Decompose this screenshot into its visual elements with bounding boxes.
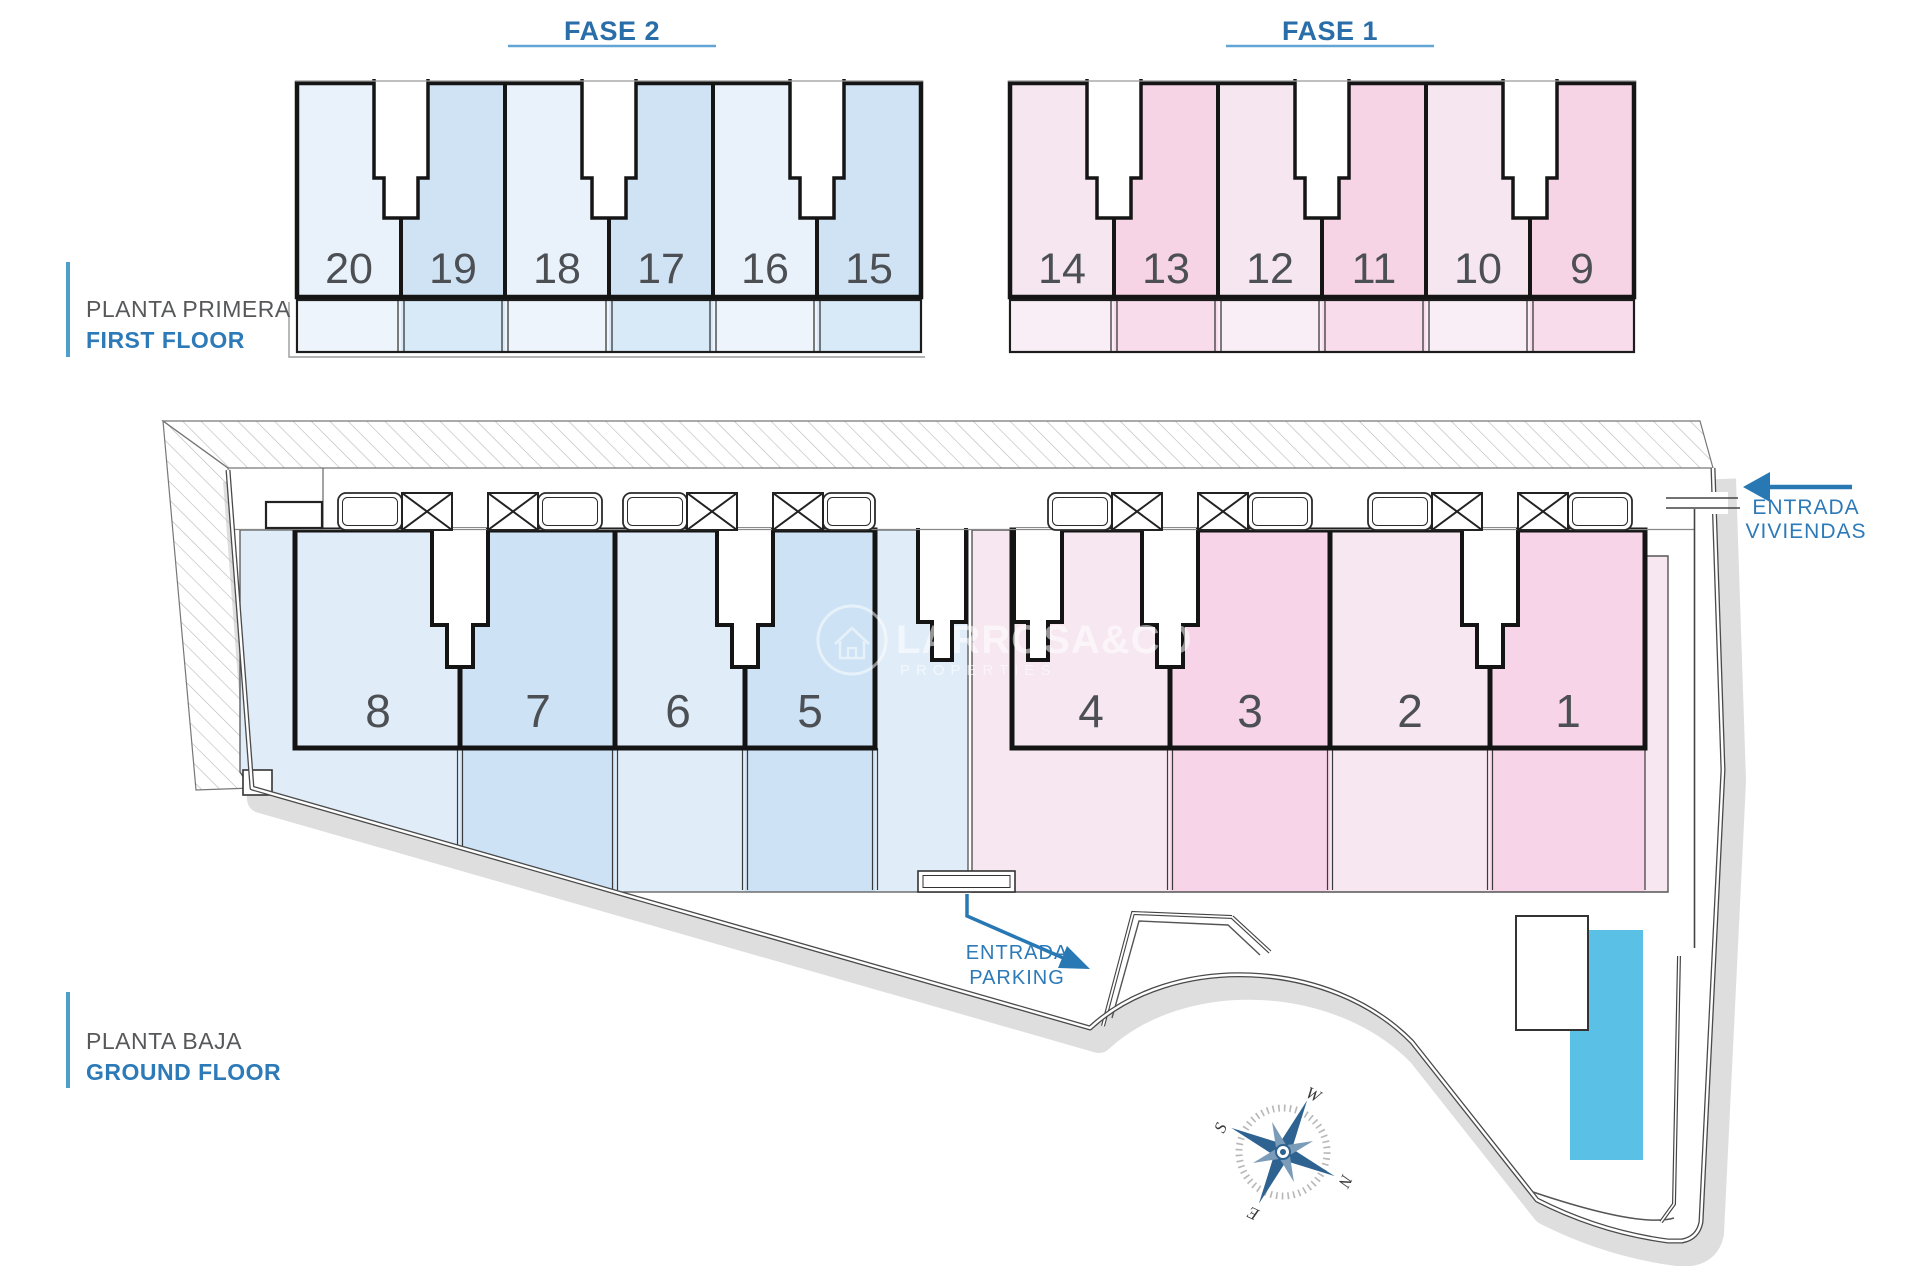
pool-house	[1516, 916, 1588, 1030]
unit-15-number: 15	[845, 245, 893, 294]
unit-4-number: 4	[1078, 684, 1104, 738]
hatch-band-top	[163, 421, 1713, 468]
unit-14-number: 14	[1038, 245, 1086, 294]
first-floor-fase2-block	[289, 79, 925, 357]
first-floor-rule	[66, 262, 70, 357]
unit-2-number: 2	[1397, 684, 1423, 738]
unit-18-number: 18	[533, 245, 581, 294]
site-plan: N E S W FASE 2 FASE 1 PLANTA PRIMERA FIR…	[0, 0, 1920, 1280]
unit-19-number: 19	[429, 245, 477, 294]
unit-10-number: 10	[1454, 245, 1502, 294]
homes-entrance-label-1: ENTRADA	[1752, 496, 1859, 520]
homes-entrance-label-2: VIVIENDAS	[1745, 520, 1866, 544]
balcony-strip-fase2	[289, 300, 925, 357]
unit-7-number: 7	[525, 684, 551, 738]
compass-s-label: S	[1210, 1119, 1231, 1135]
watermark-name: LARROSA&CO	[896, 618, 1193, 663]
compass-e-label: E	[1244, 1202, 1263, 1224]
parking-entrance-label-1: ENTRADA	[966, 942, 1069, 965]
unit-1-number: 1	[1555, 684, 1581, 738]
unit-5-number: 5	[797, 684, 823, 738]
compass-rose: N E S W	[1207, 1076, 1358, 1227]
unit-13-number: 13	[1142, 245, 1190, 294]
unit-12-number: 12	[1246, 245, 1294, 294]
entry-gap	[1704, 492, 1728, 514]
fase2-title: FASE 2	[564, 16, 660, 47]
unit-16-number: 16	[741, 245, 789, 294]
parking-entrance-label-2: PARKING	[969, 967, 1065, 990]
ground-floor-title-en: GROUND FLOOR	[86, 1059, 281, 1086]
balcony-strip-fase1	[1010, 300, 1634, 352]
unit-20-number: 20	[325, 245, 373, 294]
unit-1-side-yard[interactable]	[1645, 530, 1668, 892]
unit-9-number: 9	[1570, 245, 1594, 294]
porch-left	[266, 502, 322, 528]
unit-11-number: 11	[1352, 245, 1397, 294]
fase1-title: FASE 1	[1282, 16, 1378, 47]
compass-n-label: N	[1334, 1171, 1357, 1192]
unit-17-number: 17	[637, 245, 685, 294]
first-floor-fase1-block	[1008, 79, 1636, 352]
first-floor-title-es: PLANTA PRIMERA	[86, 296, 291, 323]
first-floor-title-en: FIRST FLOOR	[86, 327, 245, 354]
ground-floor-title-es: PLANTA BAJA	[86, 1028, 242, 1055]
watermark-tagline: PROPERTIES	[900, 662, 1056, 679]
unit-6-number: 6	[665, 684, 691, 738]
parking-ramp	[918, 871, 1015, 892]
ground-floor-rule	[66, 992, 70, 1088]
unit-3-number: 3	[1237, 684, 1263, 738]
unit-8-number: 8	[365, 684, 391, 738]
